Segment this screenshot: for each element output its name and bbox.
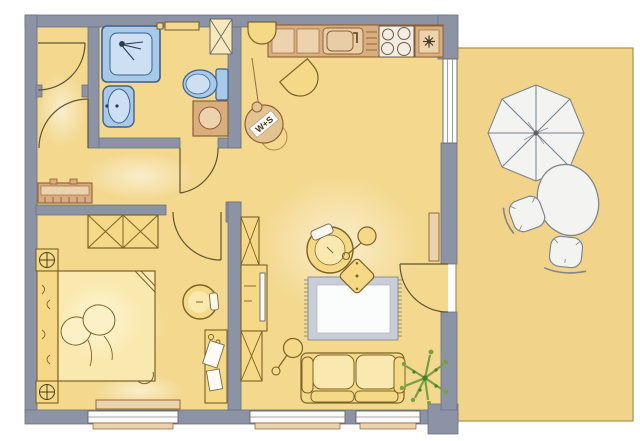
living-radiator-east [429, 213, 439, 261]
shower [102, 26, 160, 82]
stove [379, 26, 414, 57]
hallway [38, 179, 92, 203]
wall-hall-bedroom [36, 205, 166, 215]
bath-shelf [157, 22, 199, 30]
bedroom-radiator [96, 400, 180, 409]
window-right-wall [443, 59, 457, 143]
tv-icon [260, 273, 265, 321]
wall-bath-bottom-a [99, 138, 180, 148]
window-living-south-2 [356, 411, 420, 429]
wall-right-mid [441, 143, 457, 264]
window-bedroom-south [88, 411, 178, 429]
fridge-freezer [415, 26, 443, 57]
wall-unit-cabinet-bottom [241, 331, 262, 381]
wall-vestibule-bath [88, 27, 99, 148]
wall-right-low [441, 312, 457, 410]
floor-plan-page: W+S [0, 0, 640, 441]
wall-bedroom-living [228, 202, 241, 410]
floor-plan: W+S [0, 0, 640, 441]
lamp-icon [40, 385, 55, 400]
hall-radiator [38, 179, 92, 203]
nightstand-top [36, 249, 58, 271]
wardrobe [88, 215, 158, 248]
desk [203, 330, 227, 403]
wall-unit-cabinet-top [241, 217, 259, 265]
kitchen-chair-1 [248, 22, 276, 44]
wall-left [25, 15, 37, 412]
window-living-south-1 [250, 411, 345, 429]
nightstand-bottom [36, 381, 58, 403]
kitchen-sink [323, 28, 363, 54]
washbasin [103, 86, 134, 127]
doorframe-stub-right [82, 85, 88, 97]
washing-machine [193, 101, 228, 136]
toilet [183, 69, 228, 100]
tv-sideboard [241, 265, 267, 331]
double-bed [37, 271, 155, 384]
ventilation-shaft [210, 19, 232, 54]
sofa [301, 353, 405, 403]
doorframe-stub-left [36, 85, 42, 97]
lamp-icon [40, 253, 55, 268]
